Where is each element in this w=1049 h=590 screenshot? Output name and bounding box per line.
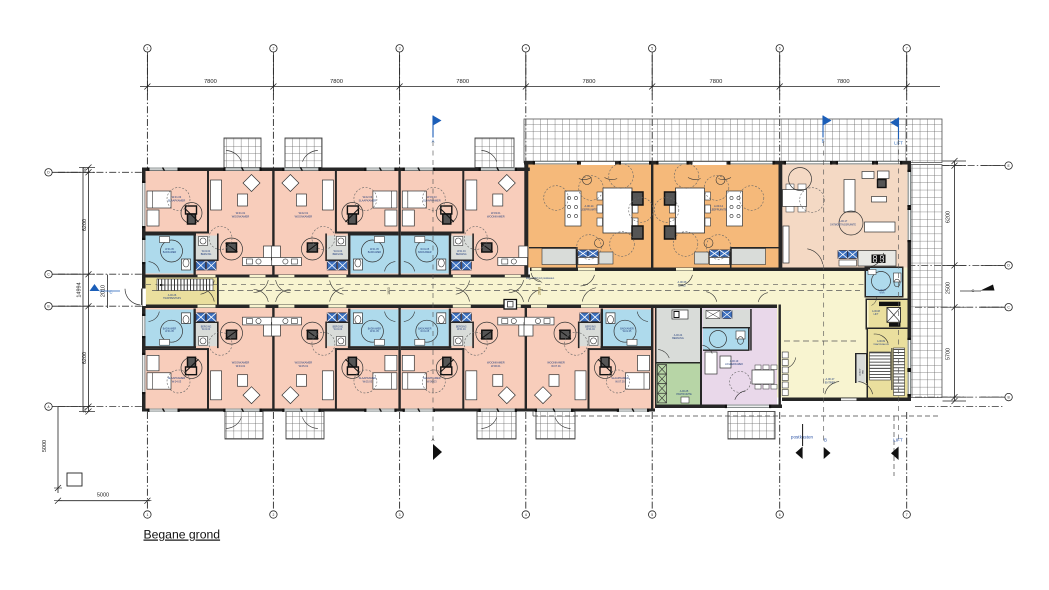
svg-text:W.01.05: W.01.05 [370, 330, 379, 333]
svg-text:C: C [109, 290, 112, 295]
svg-text:7800: 7800 [837, 79, 850, 85]
svg-text:SLAAPKAMER: SLAAPKAMER [423, 199, 441, 203]
svg-text:LEEFRUIMTE: LEEFRUIMTE [581, 208, 598, 212]
svg-text:B: B [824, 438, 827, 443]
svg-text:2: 2 [272, 47, 274, 51]
svg-text:BERGING: BERGING [333, 326, 344, 328]
svg-text:BADKAMER: BADKAMER [620, 327, 634, 330]
svg-text:B: B [822, 139, 825, 144]
svg-text:A.00.06: A.00.06 [678, 280, 687, 284]
svg-text:297: 297 [83, 407, 87, 413]
svg-text:A.00.08: A.00.08 [872, 310, 881, 313]
svg-text:A.00.14: A.00.14 [714, 204, 723, 208]
svg-text:A: A [432, 437, 435, 442]
svg-text:1800: 1800 [387, 287, 391, 295]
svg-text:WOONKAMER: WOONKAMER [232, 215, 250, 219]
svg-text:2610: 2610 [538, 287, 542, 295]
svg-text:WOONKAMER: WOONKAMER [487, 215, 505, 219]
svg-text:7800: 7800 [330, 79, 343, 85]
svg-text:Begane grond: Begane grond [144, 528, 221, 542]
svg-text:BERGING: BERGING [333, 254, 344, 256]
svg-text:W.03.01: W.03.01 [491, 211, 501, 215]
svg-text:W.01.05: W.01.05 [165, 330, 174, 333]
svg-text:W.01.04: W.01.04 [586, 329, 595, 331]
svg-text:297: 297 [83, 167, 87, 173]
svg-text:PANTRUIMTE: PANTRUIMTE [676, 393, 692, 396]
svg-text:A.00.09: A.00.09 [877, 340, 886, 343]
svg-text:5000: 5000 [97, 493, 109, 499]
svg-text:SLAAPKAMER: SLAAPKAMER [168, 199, 186, 203]
svg-text:W.01.04: W.01.04 [334, 251, 343, 253]
svg-text:inbouwWM incl postkasten: inbouwWM incl postkasten [526, 277, 555, 280]
svg-text:BADKAMER: BADKAMER [163, 327, 177, 330]
svg-text:5: 5 [651, 47, 653, 51]
svg-text:LIFT: LIFT [893, 438, 903, 443]
svg-text:SLAAPKAMER: SLAAPKAMER [168, 376, 186, 380]
svg-text:BADKAMER: BADKAMER [368, 251, 382, 254]
svg-text:BERGING: BERGING [456, 326, 467, 328]
svg-text:7800: 7800 [456, 79, 469, 85]
svg-text:1: 1 [146, 513, 148, 517]
svg-text:W.01.01: W.01.01 [236, 211, 246, 215]
svg-text:SLAAPKAMER: SLAAPKAMER [423, 376, 441, 380]
svg-text:5000: 5000 [42, 440, 48, 452]
svg-text:A.00.10: A.00.10 [878, 289, 887, 292]
svg-text:WOONKAMER: WOONKAMER [547, 361, 565, 365]
svg-text:4: 4 [525, 513, 527, 517]
svg-text:WOONKAMER: WOONKAMER [487, 361, 505, 365]
svg-text:3: 3 [399, 47, 401, 51]
svg-text:BERGING: BERGING [456, 254, 467, 256]
svg-text:7: 7 [906, 47, 908, 51]
svg-text:BADKAMER: BADKAMER [418, 327, 432, 330]
svg-text:TRAPPENHUIS: TRAPPENHUIS [873, 343, 889, 346]
svg-text:7800: 7800 [204, 79, 217, 85]
svg-text:WM: WM [863, 370, 865, 374]
svg-text:A.00.27: A.00.27 [826, 377, 835, 381]
svg-text:6200: 6200 [82, 352, 88, 364]
svg-text:LIFT: LIFT [874, 314, 879, 316]
svg-text:4: 4 [525, 47, 527, 51]
svg-text:W.03.03: W.03.03 [427, 195, 437, 199]
svg-text:7: 7 [906, 513, 908, 517]
svg-text:BADKAMER: BADKAMER [163, 251, 177, 254]
svg-text:W.01.04: W.01.04 [202, 329, 211, 331]
svg-text:LOGEERKAMER: LOGEERKAMER [725, 363, 743, 366]
svg-text:BERGING: BERGING [201, 326, 212, 328]
svg-text:6: 6 [779, 47, 781, 51]
svg-text:W.01.05: W.01.05 [420, 330, 429, 333]
svg-text:1: 1 [146, 47, 148, 51]
svg-text:WOONKAMER: WOONKAMER [295, 215, 313, 219]
svg-text:BADKAMER: BADKAMER [368, 327, 382, 330]
svg-text:SLAAPKAMER: SLAAPKAMER [359, 376, 377, 380]
svg-text:ENTREE: ENTREE [825, 381, 836, 385]
svg-text:WOONKAMER: WOONKAMER [295, 361, 313, 365]
svg-text:A.00.14: A.00.14 [585, 204, 594, 208]
svg-text:6200: 6200 [946, 211, 952, 223]
svg-text:LEEFRUIMTE: LEEFRUIMTE [710, 208, 727, 212]
svg-text:W.01.04: W.01.04 [202, 251, 211, 253]
svg-text:W.02.01: W.02.01 [299, 211, 309, 215]
svg-text:2: 2 [272, 513, 274, 517]
svg-text:BERGING: BERGING [585, 326, 596, 328]
svg-text:ONTMOETINGSRUIMTE: ONTMOETINGSRUIMTE [830, 225, 856, 227]
svg-text:A.00.17: A.00.17 [839, 220, 848, 223]
svg-text:5700: 5700 [946, 348, 952, 360]
svg-text:7800: 7800 [709, 79, 722, 85]
svg-text:W.01.04: W.01.04 [334, 329, 343, 331]
svg-text:BADKAMER: BADKAMER [418, 251, 432, 254]
svg-text:W.01.04: W.01.04 [457, 329, 466, 331]
svg-text:W.02.03: W.02.03 [363, 195, 373, 199]
svg-text:7800: 7800 [583, 79, 596, 85]
svg-text:A.00.07: A.00.07 [859, 368, 862, 376]
svg-text:BERGING: BERGING [672, 337, 684, 340]
svg-text:6200: 6200 [82, 219, 88, 231]
svg-text:2500: 2500 [946, 282, 952, 294]
svg-text:W.01.03: W.01.03 [172, 195, 182, 199]
svg-text:14994: 14994 [77, 282, 83, 297]
svg-text:SLAAPKAMER: SLAAPKAMER [611, 376, 629, 380]
svg-text:W.01.05: W.01.05 [623, 330, 632, 333]
svg-text:WVA: WVA [879, 292, 885, 295]
svg-text:C: C [972, 288, 975, 293]
svg-text:A.00.19: A.00.19 [730, 360, 739, 363]
svg-text:SLAAPKAMER: SLAAPKAMER [359, 199, 377, 203]
svg-text:W.01.04: W.01.04 [457, 251, 466, 253]
svg-text:5: 5 [651, 513, 653, 517]
svg-text:3: 3 [399, 513, 401, 517]
svg-text:TRAPPENHUIS: TRAPPENHUIS [163, 297, 181, 300]
svg-text:BERGING: BERGING [201, 254, 212, 256]
svg-text:WOONKAMER: WOONKAMER [232, 361, 250, 365]
svg-text:6: 6 [779, 513, 781, 517]
